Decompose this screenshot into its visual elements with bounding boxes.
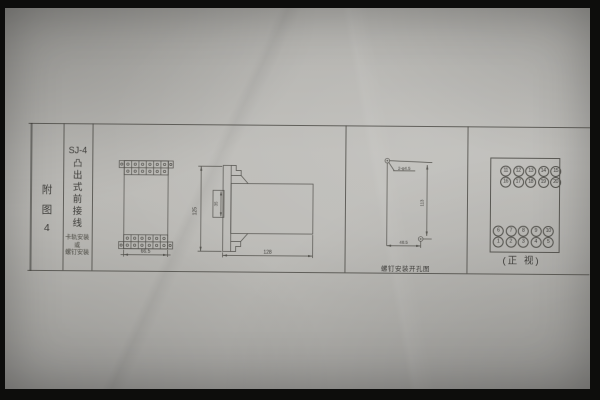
terminal-number: 16	[500, 177, 511, 188]
table-left-border	[29, 123, 32, 271]
vertical-dimension: 113	[387, 161, 433, 246]
title-char: 接	[73, 206, 83, 218]
panel-terminal-row: 1112131415	[500, 166, 563, 176]
relay-side-outline	[213, 165, 314, 252]
terminal-number: 15	[550, 166, 561, 177]
drill-view-caption: 螺钉安装开孔图	[371, 263, 439, 274]
width-dimension: 66.5	[121, 249, 171, 257]
title-char: 前	[73, 194, 83, 206]
terminal-number: 20	[550, 177, 561, 188]
table-top-border	[29, 123, 590, 128]
title-char: 出	[73, 170, 83, 182]
terminal-number: 6	[493, 226, 504, 237]
paper-page: 附 图 4 SJ-4 凸 出 式 前 接 线 卡轨安装 或 螺钉安装	[5, 8, 590, 389]
hole-spacing-h-label: 48.5	[399, 240, 408, 245]
panel-terminal-row: 678910	[493, 226, 556, 236]
front-view-caption: (正 视)	[490, 252, 552, 266]
mounting-line: 螺钉安装	[65, 250, 89, 258]
terminal-number: 18	[525, 177, 536, 188]
mounting-note: 卡轨安装 或 螺钉安装	[65, 235, 89, 258]
terminal-number: 17	[513, 177, 524, 188]
plan-view-drawing: 66.5	[112, 151, 179, 264]
top-terminal-grid	[124, 161, 168, 175]
depth-dim-label: 128	[263, 250, 272, 256]
window-dim-label: 35	[213, 201, 218, 206]
figure-label-char: 4	[44, 222, 50, 234]
title-char: 式	[73, 182, 83, 194]
model-name: SJ-4	[69, 145, 88, 155]
terminal-number: 12	[513, 166, 524, 177]
terminal-number: 2	[505, 237, 516, 248]
height-dim-label: 125	[192, 207, 198, 216]
hole-spacing-v-label: 113	[419, 199, 424, 206]
terminal-number: 14	[538, 166, 549, 177]
horizontal-dimension: 48.5	[387, 240, 421, 248]
terminal-number: 1	[493, 237, 504, 248]
width-dim-label: 66.5	[141, 249, 151, 255]
terminal-number: 9	[530, 226, 541, 237]
drawing-table: 附 图 4 SJ-4 凸 出 式 前 接 线 卡轨安装 或 螺钉安装	[5, 8, 590, 389]
convex-symbol: 凸	[73, 158, 82, 169]
terminal-number: 13	[525, 166, 536, 177]
table-bottom-border	[27, 270, 589, 275]
mounting-line: 卡轨安装	[65, 235, 89, 243]
panel-terminal-row: 1617181920	[500, 177, 563, 187]
drill-hole-drawing: 2-φ4.5 113 48.5	[367, 151, 446, 280]
terminal-number: 19	[538, 177, 549, 188]
title-block: SJ-4 凸 出 式 前 接 线 卡轨安装 或 螺钉安装	[64, 145, 92, 258]
column-divider-3	[344, 125, 346, 272]
terminal-number: 10	[543, 226, 554, 237]
bottom-terminal-grid	[124, 235, 168, 249]
terminal-number: 7	[505, 226, 516, 237]
figure-number-label: 附 图 4	[38, 182, 56, 234]
side-view-drawing: 125 35	[189, 154, 330, 265]
panel-terminal-row: 12345	[493, 237, 556, 247]
terminal-number: 11	[500, 166, 511, 177]
window-dimension: 35	[213, 191, 222, 216]
column-divider-2	[91, 123, 93, 270]
terminal-number: 4	[530, 237, 541, 248]
hole-leader-label: 2-φ4.5	[389, 162, 416, 170]
figure-label-char: 附	[42, 182, 53, 197]
title-char: 线	[72, 218, 82, 230]
hole-label: 2-φ4.5	[398, 166, 411, 171]
front-view-panel: 1112131415161718192067891012345	[490, 157, 561, 253]
column-divider-4	[466, 126, 468, 273]
terminal-number: 5	[543, 237, 554, 248]
figure-label-char: 图	[42, 202, 53, 217]
height-dimension: 125	[192, 166, 222, 251]
terminal-number: 8	[518, 226, 529, 237]
terminal-number: 3	[518, 237, 529, 248]
